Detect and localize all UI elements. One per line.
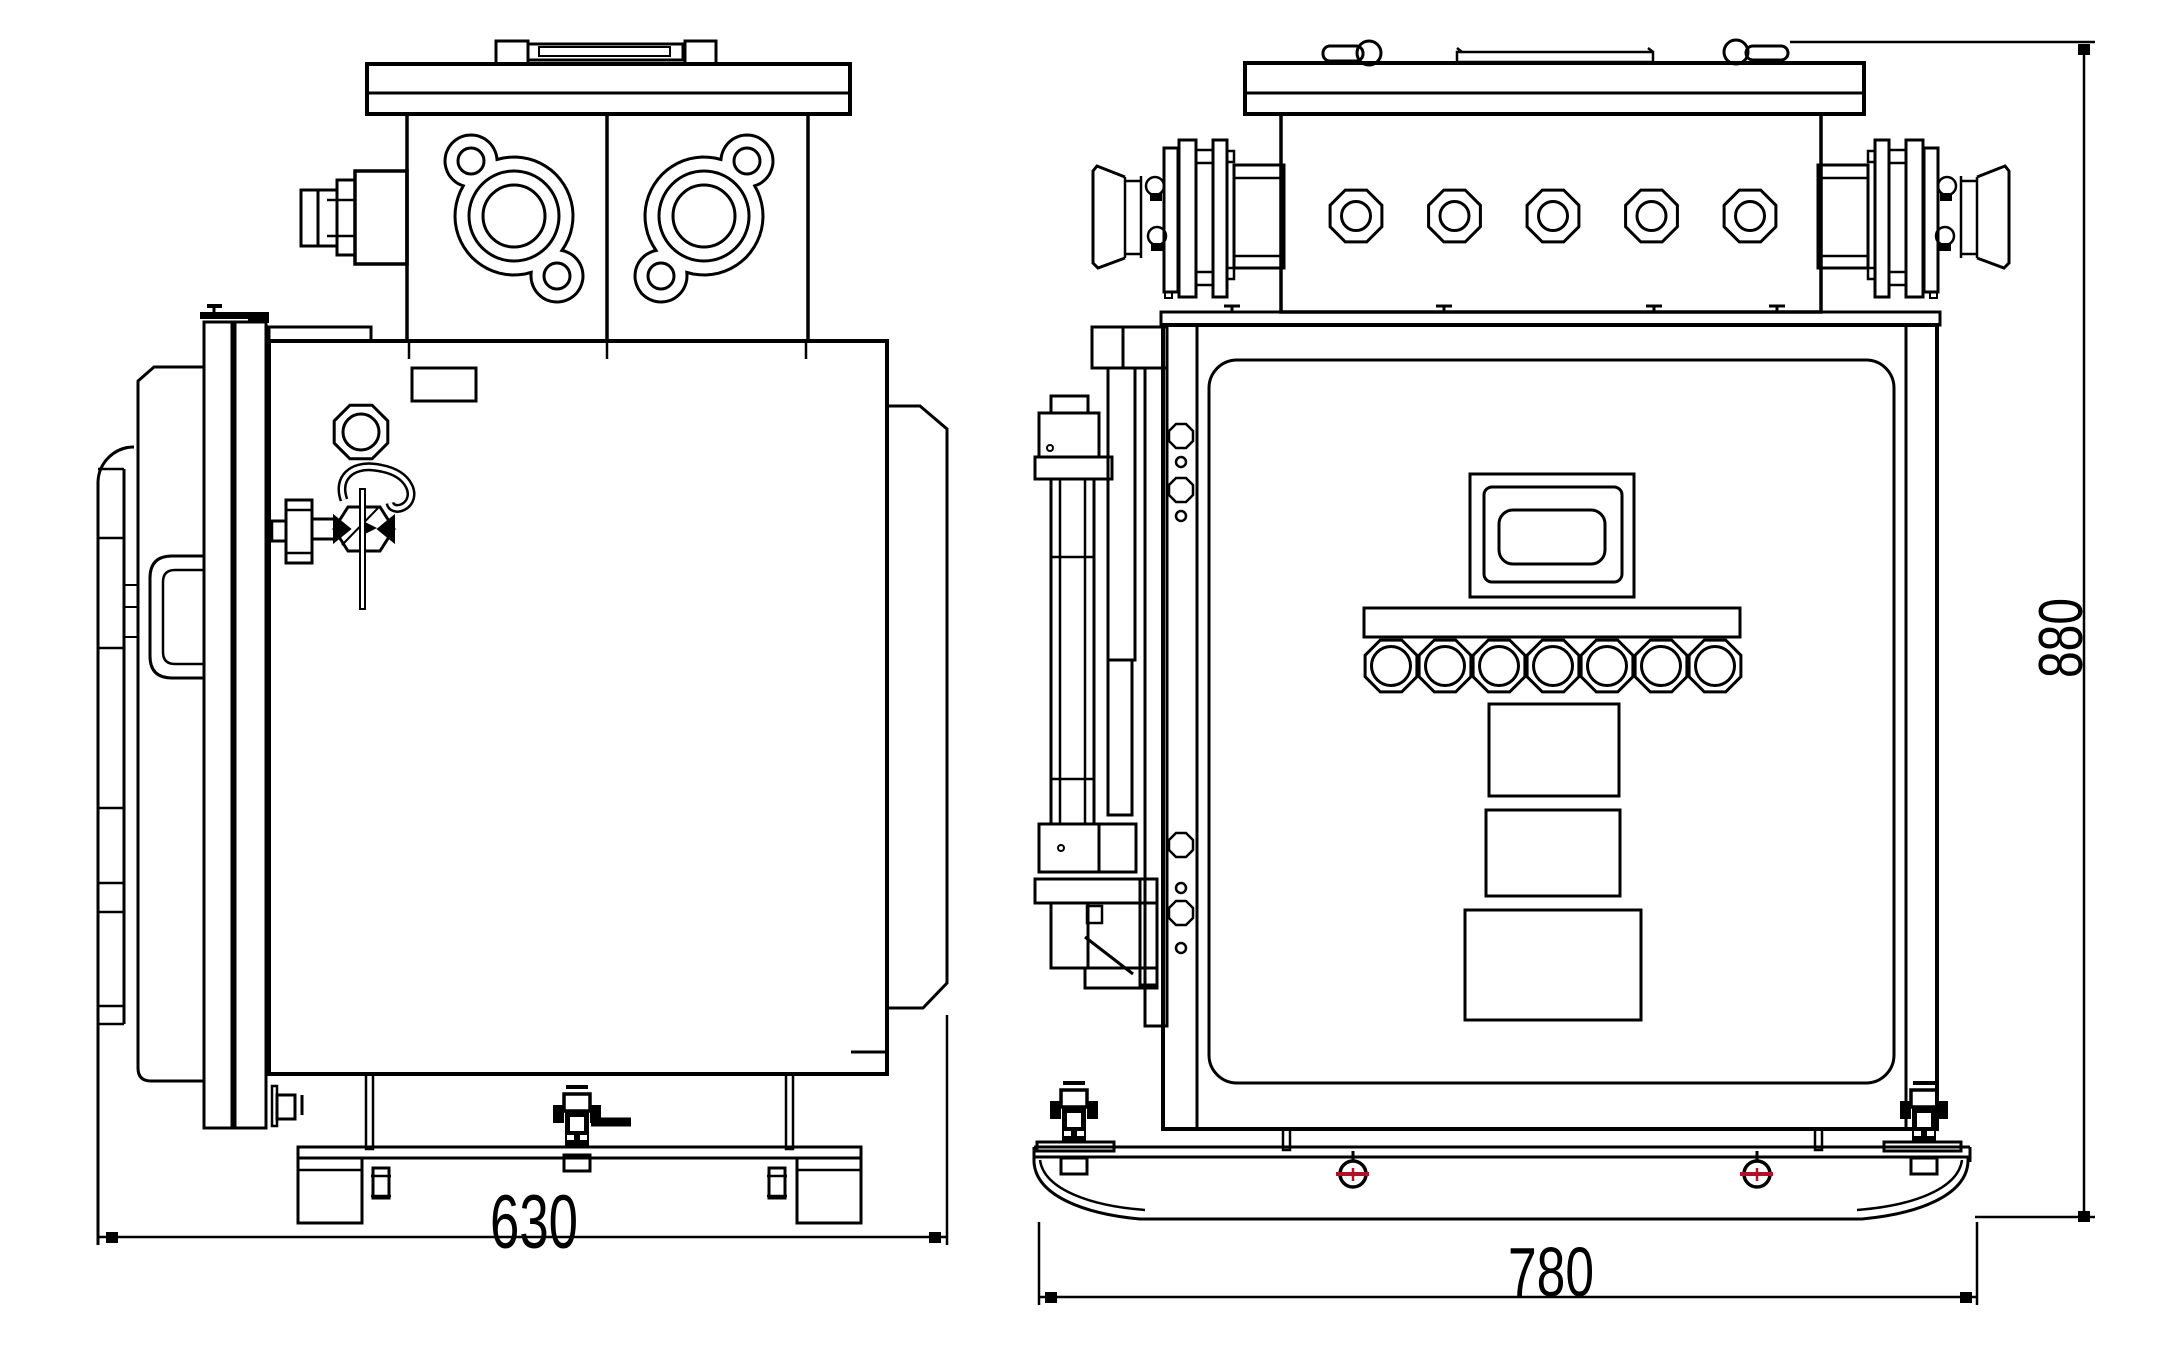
svg-text:780: 780 (1508, 1233, 1594, 1311)
svg-text:880: 880 (2027, 598, 2096, 678)
svg-text:630: 630 (490, 1180, 578, 1265)
